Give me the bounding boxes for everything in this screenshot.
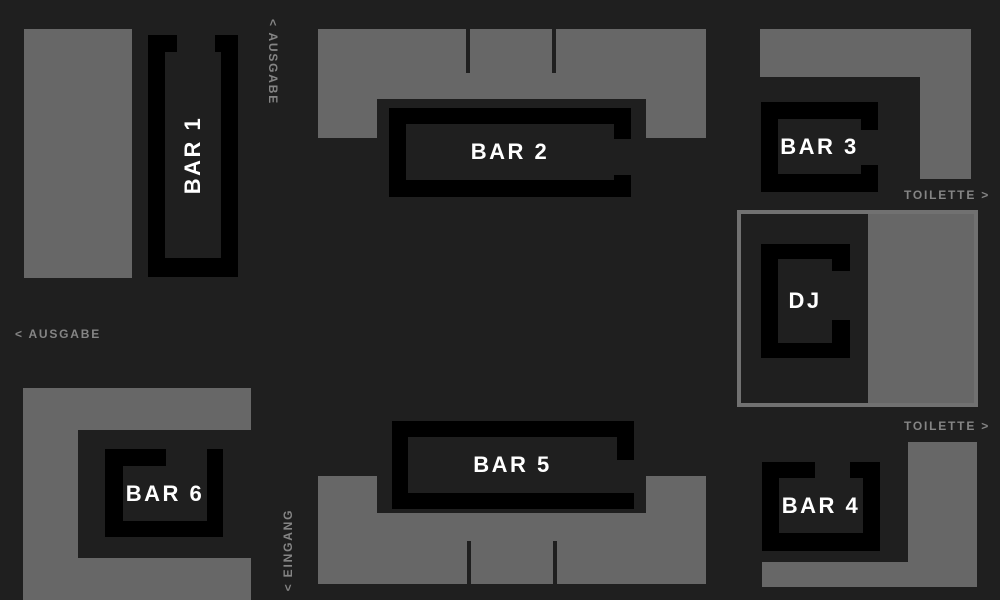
bar-6-label: BAR 6 (126, 483, 205, 505)
sign-toilette-upper: TOILETTE > (904, 189, 990, 201)
area-bottom-center-cut3 (553, 541, 558, 584)
bar-6-opening (166, 449, 207, 466)
area-top-right-part2 (920, 77, 971, 179)
bar-1-label: BAR 1 (182, 116, 204, 195)
sign-ausgabe-top: < AUSGABE (267, 19, 279, 105)
bar-5-label: BAR 5 (473, 454, 552, 476)
bar-3-opening (861, 130, 878, 165)
area-top-center-cut2 (466, 29, 471, 73)
club-floor-plan-map: BAR 1BAR 2BAR 3DJBAR 4BAR 5BAR 6< AUSGAB… (0, 0, 1000, 600)
area-bottom-right-part2 (762, 562, 977, 587)
bar-4-opening (815, 462, 850, 478)
bar-5-opening (617, 460, 634, 493)
sign-toilette-lower: TOILETTE > (904, 420, 990, 432)
area-top-right (760, 29, 971, 77)
area-bottom-center-cut2 (467, 541, 472, 584)
bar-2-label: BAR 2 (471, 141, 550, 163)
bar-4-label: BAR 4 (782, 495, 861, 517)
sign-eingang: < EINGANG (282, 509, 294, 592)
area-top-left (24, 29, 132, 278)
dj-booth-opening (832, 271, 850, 320)
area-top-center-cut3 (552, 29, 557, 73)
bar-2-opening (614, 139, 631, 175)
dj-booth-label: DJ (788, 290, 821, 312)
bar-3-label: BAR 3 (780, 136, 859, 158)
sign-ausgabe-left: < AUSGABE (15, 328, 101, 340)
bar-1-opening (177, 35, 215, 52)
dj-zone-floor (868, 214, 974, 403)
